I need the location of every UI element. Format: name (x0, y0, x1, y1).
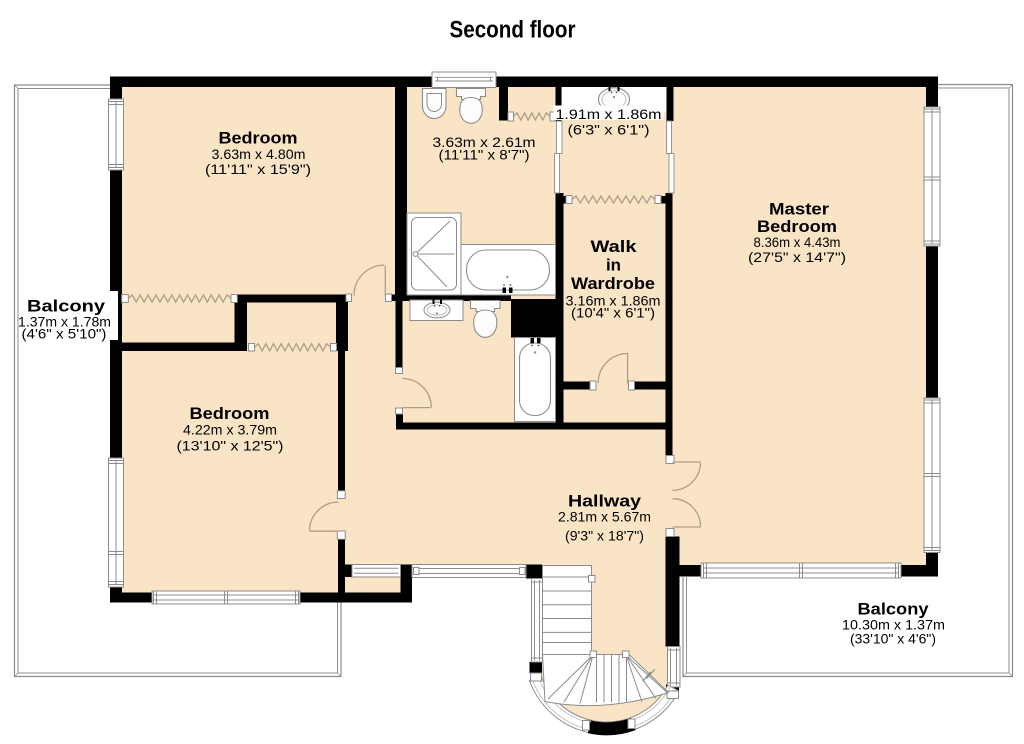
svg-text:in: in (606, 257, 621, 275)
svg-text:Walk: Walk (591, 238, 638, 256)
svg-text:(11'11" x 15'9"): (11'11" x 15'9") (205, 162, 311, 177)
svg-text:3.63m x 4.80m: 3.63m x 4.80m (212, 147, 306, 162)
svg-text:2.81m x 5.67m: 2.81m x 5.67m (558, 510, 651, 525)
svg-text:Second floor: Second floor (450, 17, 576, 44)
svg-text:1.91m x 1.86m: 1.91m x 1.86m (556, 107, 662, 122)
svg-text:Hallway: Hallway (568, 493, 642, 511)
svg-text:10.30m x 1.37m: 10.30m x 1.37m (842, 618, 945, 633)
svg-text:Bedroom: Bedroom (757, 218, 837, 236)
svg-text:Balcony: Balcony (27, 298, 106, 316)
svg-text:Master: Master (769, 201, 830, 219)
svg-text:(13'10" x 12'5"): (13'10" x 12'5") (177, 439, 284, 454)
svg-text:(11'11" x 8'7"): (11'11" x 8'7") (439, 148, 530, 163)
svg-text:(33'10" x 4'6"): (33'10" x 4'6") (850, 632, 936, 647)
svg-text:Bedroom: Bedroom (219, 130, 298, 148)
svg-text:(10'4" x 6'1"): (10'4" x 6'1") (571, 306, 655, 321)
svg-text:Wardrobe: Wardrobe (571, 275, 655, 293)
svg-text:Balcony: Balcony (858, 601, 930, 619)
svg-text:8.36m x 4.43m: 8.36m x 4.43m (754, 235, 841, 250)
svg-text:(9'3" x 18'7"): (9'3" x 18'7") (565, 529, 644, 544)
svg-text:4.22m x 3.79m: 4.22m x 3.79m (183, 423, 277, 438)
svg-text:(4'6" x 5'10"): (4'6" x 5'10") (22, 327, 107, 342)
svg-text:(6'3" x 6'1"): (6'3" x 6'1") (568, 123, 650, 138)
svg-text:(27'5" x 14'7"): (27'5" x 14'7") (748, 250, 846, 265)
svg-text:Bedroom: Bedroom (190, 405, 270, 423)
